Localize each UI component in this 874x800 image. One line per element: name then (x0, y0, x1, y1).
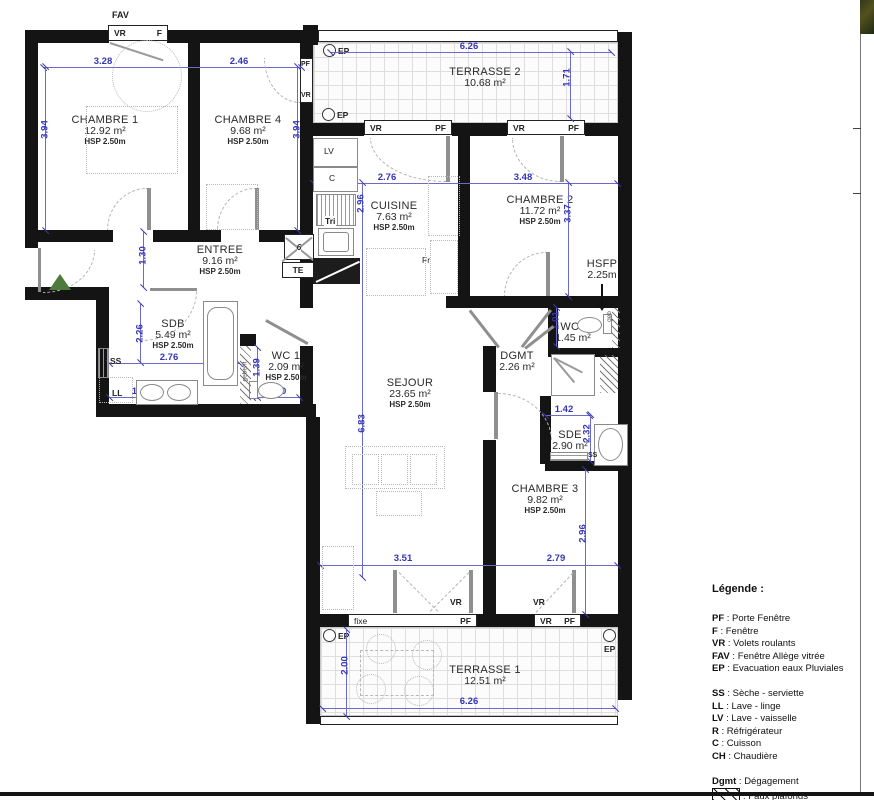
legend-desc: : Volets roulants (728, 638, 796, 649)
room-area: 2.26 m² (488, 362, 546, 374)
terrace-chair (356, 674, 386, 704)
legend-item: F : Fenêtre (712, 626, 870, 639)
wall-segment (306, 417, 320, 627)
legend: Légende : PF : Porte Fenêtre F : Fenêtre… (712, 583, 870, 800)
wall-segment (477, 614, 534, 627)
legend-desc: : Lave - vaisselle (726, 713, 797, 724)
vr-label: VR (114, 28, 126, 38)
pf-label: PF (460, 616, 471, 626)
room-hsp: HSP 2.50m (186, 268, 254, 277)
ll-label: LL (112, 388, 122, 398)
legend-item: CH : Chaudière (712, 751, 870, 764)
entrance-arrow-icon (49, 274, 71, 290)
room-hsp: HSP 2.50m (357, 224, 431, 233)
faux-plafond-hatch (612, 308, 620, 348)
room-label-terrasse2: TERRASSE 2 10.68 m² (425, 66, 545, 90)
kitchen-dotted-zone (366, 248, 426, 296)
legend-desc: : Fenêtre (720, 626, 758, 637)
legend-item: PF : Porte Fenêtre (712, 613, 870, 626)
dim-chambre2-height: 3.37 (563, 199, 574, 229)
room-area: 10.68 m² (425, 78, 545, 90)
dim-line (320, 565, 618, 566)
legend-desc: : Chaudière (728, 751, 777, 762)
ss-label: SS (110, 356, 121, 366)
legend-desc: : Cuisson (722, 738, 762, 749)
page-tick (853, 128, 861, 129)
legend-key: C (712, 738, 719, 749)
hsfp-arrow-icon (597, 303, 607, 311)
legend-key: VR (712, 638, 725, 649)
dim-terrasse1-depth: 2.00 (340, 651, 351, 681)
dim-line (313, 183, 618, 184)
dishwasher (313, 138, 358, 167)
room-label-sejour: SEJOUR 23.65 m² HSP 2.50m (368, 377, 452, 410)
ss-label: SS (588, 452, 597, 459)
dim-chambre3-height: 2.96 (578, 519, 589, 549)
dim-chambre3-width: 2.79 (543, 553, 569, 564)
bathtub-inner (207, 307, 234, 380)
legend-desc: : Dégagement (739, 776, 799, 787)
pf-label: PF (564, 616, 575, 626)
legend-desc: : Réfrigérateur (722, 726, 783, 737)
legend-item: EP : Evacuation eaux Pluviales (712, 663, 870, 676)
chambre2-door-arc (504, 252, 546, 296)
legend-item: C : Cuisson (712, 738, 870, 751)
fridge-zone (428, 176, 460, 236)
hsfp-arrow-line (601, 284, 603, 304)
dim-line (362, 183, 363, 577)
cuisine-window: VR PF (364, 120, 452, 135)
c-label: C (329, 173, 335, 183)
room-label-dgmt: DGMT 2.26 m² (488, 350, 546, 374)
dim-sejour-height: 6.83 (357, 409, 368, 439)
dgmt-door-leaf (469, 309, 500, 348)
vr-label: VR (513, 123, 525, 133)
legend-desc: : Porte Fenêtre (727, 613, 790, 624)
room-label-cuisine: CUISINE 7.63 m² HSP 2.50m (357, 200, 431, 233)
wc1-door-leaf (265, 319, 308, 344)
ep-label: EP (604, 644, 615, 654)
room-label-terrasse1: TERRASSE 1 12.51 m² (425, 664, 545, 688)
kitchen-sink-basin (323, 232, 349, 252)
dim-sde-height: 2.32 (582, 419, 593, 449)
hsfp-annotation: HSFP 2.25m (576, 258, 628, 282)
te-box: TE (282, 262, 314, 278)
towel-radiator (550, 452, 588, 461)
chambre2-door-leaf (546, 252, 550, 296)
wall-segment (618, 32, 632, 136)
tri-label: Tri (324, 216, 336, 226)
wall-segment (313, 123, 364, 136)
legend-desc: : Fenêtre Allège vitrée (732, 651, 824, 662)
wall-segment (618, 136, 632, 627)
legend-item: LL : Lave - linge (712, 701, 870, 714)
geb-label: geb (606, 311, 613, 322)
bed (86, 106, 178, 174)
legend-item: FAV : Fenêtre Allège vitrée (712, 651, 870, 664)
chambre2-terrace-door-leaf (560, 136, 564, 182)
fixe-label: fixe (354, 616, 367, 626)
legend-key: R (712, 726, 719, 737)
chambre1-door-arc (107, 188, 147, 230)
dim-terrasse2-depth: 1.71 (562, 63, 573, 93)
chambre4-window-arc (264, 58, 300, 103)
wall-segment (452, 123, 507, 136)
ep-label: EP (338, 46, 349, 56)
ep-drain-icon (603, 629, 616, 642)
legend-key: SS (712, 688, 725, 699)
terrace-chair (366, 634, 396, 664)
dim-chambre4-width: 2.46 (226, 56, 252, 67)
dim-wc1-height: 1.39 (252, 353, 263, 383)
room-label-chambre3: CHAMBRE 3 9.82 m² HSP 2.50m (498, 483, 592, 516)
legend-key: F (712, 626, 718, 637)
page-border-line (860, 0, 861, 794)
wall-segment (300, 136, 313, 308)
wall-segment (618, 627, 632, 700)
wall-segment (585, 123, 632, 136)
room-hsp: HSP 2.50m (196, 138, 300, 147)
sofa-cushion (381, 454, 408, 485)
legend-item: R : Réfrigérateur (712, 726, 870, 739)
fav-window: VR F (108, 25, 168, 41)
vr-label: VR (301, 92, 311, 99)
photo-fragment (860, 0, 874, 34)
entrance-door-leaf (38, 248, 41, 292)
geberit-label: geberit (241, 362, 248, 382)
wall-segment (303, 25, 318, 45)
terrasse1-railing (320, 716, 618, 725)
chambre3-window: VR PF (534, 614, 581, 627)
room-label-wc1: WC 1 2.09 m² HSP 2.50m (260, 350, 312, 383)
fav-label: FAV (112, 10, 129, 20)
chambre3-terrace-door-leaf (572, 570, 576, 613)
dim-terrasse2-width: 6.26 (456, 41, 482, 52)
legend-title: Légende : (712, 583, 870, 595)
vr-label: VR (540, 616, 552, 626)
sink (598, 428, 623, 461)
shaft-label: 6 (297, 242, 302, 252)
ep-label: EP (337, 110, 348, 120)
dim-height-left: 3.94 (40, 115, 51, 145)
page-tick (853, 193, 861, 194)
chambre1-ceiling-circle (112, 40, 182, 112)
wall-segment (300, 43, 313, 58)
vr-label: VR (533, 597, 545, 607)
floor-plan: FAV VR F PF VR VR PF VR PF fixe PF VR PF… (0, 0, 874, 800)
sofa-cushion (410, 454, 437, 485)
coffee-table (376, 491, 422, 516)
dim-line (45, 67, 46, 230)
sejour-furniture (322, 546, 354, 610)
wall-segment (306, 627, 320, 724)
cooktop (313, 167, 358, 192)
toilet (577, 317, 602, 333)
room-label-entree: ENTREE 9.16 m² HSP 2.50m (186, 244, 254, 277)
terrace-chair (412, 640, 442, 670)
dim-chambre1-width: 3.28 (90, 56, 116, 67)
room-hsp: HSP 2.50m (138, 342, 208, 351)
dim-sde-width: 1.42 (551, 404, 577, 415)
legend-item: SS : Sèche - serviette (712, 688, 870, 701)
kitchen-dotted-zone (430, 240, 458, 294)
sejour-frenchdoor-leaf (393, 570, 397, 613)
legend-key: Dgmt (712, 776, 736, 787)
wall-segment (25, 43, 38, 248)
wall-segment (96, 404, 316, 417)
dim-entree: 1.30 (138, 241, 149, 271)
vr-label: VR (370, 123, 382, 133)
room-area: 12.51 m² (425, 676, 545, 688)
ep-drain-icon (322, 108, 335, 121)
chambre4-furniture (206, 184, 258, 230)
te-label: TE (293, 265, 304, 275)
dim-sejour-width: 3.51 (390, 553, 416, 564)
room-hsp: HSP 2.50m (498, 507, 592, 516)
legend-key: LV (712, 713, 723, 724)
legend-desc: : Lave - linge (726, 701, 780, 712)
wall-segment (38, 230, 113, 242)
terrace-chair (404, 676, 434, 706)
f-label: F (157, 28, 162, 38)
legend-item: VR : Volets roulants (712, 638, 870, 651)
chambre1-door-leaf (147, 188, 151, 230)
legend-desc: : Evacuation eaux Pluviales (727, 663, 843, 674)
legend-key: CH (712, 751, 726, 762)
dim-terrasse1-width: 6.26 (456, 696, 482, 707)
faux-plafond-hatch (600, 355, 618, 393)
ep-drain-icon (323, 629, 336, 642)
wall-segment (153, 230, 221, 242)
wall-segment (306, 614, 348, 627)
legend-item: LV : Lave - vaisselle (712, 713, 870, 726)
dim-cuisine-height: 2.96 (356, 189, 367, 219)
legend-item-dgmt: Dgmt : Dégagement (712, 776, 870, 789)
sejour-window: fixe PF (348, 614, 477, 627)
room-label-chambre4: CHAMBRE 4 9.68 m² HSP 2.50m (196, 114, 300, 147)
dim-wc2-height: 1.01 (551, 306, 562, 336)
hsfp-value: 2.25m (576, 270, 628, 282)
sink (167, 384, 191, 401)
dim-height-right: 3.94 (292, 115, 303, 145)
legend-desc: : Sèche - serviette (727, 688, 804, 699)
dim-line (322, 708, 616, 709)
sink (140, 384, 164, 401)
page-bottom-rule (0, 792, 874, 796)
legend-key: FAV (712, 651, 730, 662)
wall-segment (483, 440, 496, 627)
legend-key: LL (712, 701, 724, 712)
legend-key: PF (712, 613, 724, 624)
towel-radiator (98, 348, 109, 378)
sejour-frenchdoor-arc (399, 572, 439, 612)
sejour-frenchdoor-leaf (469, 570, 473, 613)
toilet (258, 382, 284, 399)
dim-line (545, 415, 590, 416)
sofa-cushion (352, 454, 379, 485)
wall-segment (25, 30, 109, 43)
room-hsp: HSP 2.50m (368, 401, 452, 410)
dim-cuisine-width: 2.76 (374, 172, 400, 183)
dim-sdb-width: 2.76 (156, 352, 182, 363)
lv-label: LV (324, 146, 334, 156)
legend-key: EP (712, 663, 725, 674)
pf-label: PF (568, 123, 579, 133)
pf-label: PF (435, 123, 446, 133)
vr-label: VR (450, 597, 462, 607)
wall-segment (167, 30, 313, 43)
